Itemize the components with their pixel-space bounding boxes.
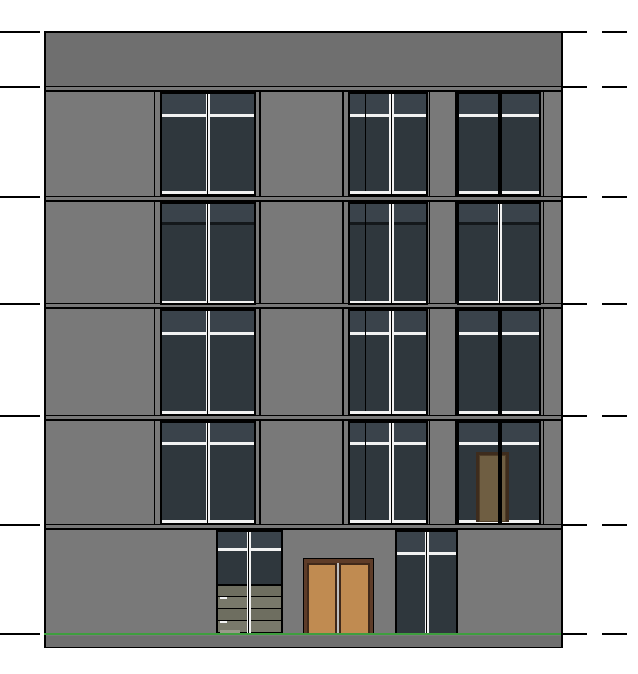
level-line-left-0[interactable]	[0, 31, 40, 33]
level-line-left-6[interactable]	[0, 633, 40, 635]
parapet-band	[46, 33, 561, 87]
window-mullion-centerline	[207, 94, 208, 194]
level-line-left-1[interactable]	[0, 86, 40, 88]
level-line-left-2[interactable]	[0, 196, 40, 198]
window-mullion-centerline	[248, 532, 249, 634]
facade-panel-line	[429, 202, 431, 303]
facade-panel-line	[342, 202, 344, 303]
slab-edge-line-upper-0	[46, 86, 562, 88]
window-casement-line	[365, 311, 367, 411]
window-mullion-centerline	[207, 423, 208, 523]
window-mullion-centerline	[499, 204, 500, 304]
level-line-right-4-1[interactable]	[602, 415, 627, 417]
level-line-right-3-0[interactable]	[561, 303, 587, 305]
grade-line[interactable]	[44, 633, 563, 635]
facade-panel-line	[154, 202, 156, 303]
facade-panel-line	[342, 92, 344, 196]
window-mullion-centerline	[391, 204, 392, 304]
window-sill	[350, 520, 426, 523]
window-mullion-centerline	[391, 423, 392, 523]
facade-panel-line	[259, 92, 261, 196]
entry-door-leaf	[339, 563, 370, 635]
facade-panel-line	[429, 92, 431, 196]
window-pane-main	[350, 117, 426, 192]
facade-panel-line	[543, 92, 545, 196]
slab-edge-line-lower-4	[46, 528, 562, 530]
window-pane-transom	[350, 94, 426, 114]
window-sill	[350, 411, 426, 414]
level-line-right-5-1[interactable]	[602, 524, 627, 526]
level-line-left-4[interactable]	[0, 415, 40, 417]
facade-panel-line	[342, 309, 344, 415]
facade-panel-line	[259, 202, 261, 303]
level-line-left-5[interactable]	[0, 524, 40, 526]
window-sill	[350, 301, 426, 304]
level-line-right-4-0[interactable]	[561, 415, 587, 417]
level-line-right-1-1[interactable]	[602, 86, 627, 88]
level-line-left-3[interactable]	[0, 303, 40, 305]
window-mullion-black	[498, 311, 502, 414]
window-casement-line	[365, 94, 367, 192]
window-mullion-centerline	[207, 204, 208, 304]
window-casement-line	[365, 423, 367, 520]
level-line-right-1-0[interactable]	[561, 86, 587, 88]
window-mullion-black	[498, 94, 502, 194]
window-mullion-centerline	[426, 532, 427, 634]
facade-panel-line	[429, 309, 431, 415]
entry-door-meeting-line	[337, 563, 338, 635]
window-pane-main	[350, 335, 426, 412]
level-line-right-6-1[interactable]	[602, 633, 627, 635]
facade-panel-line	[543, 421, 545, 524]
balcony-door-panel	[479, 455, 506, 522]
level-line-right-2-1[interactable]	[602, 196, 627, 198]
level-line-right-0-1[interactable]	[602, 31, 627, 33]
facade-panel-line	[342, 421, 344, 524]
window-mullion-centerline	[207, 311, 208, 414]
facade-panel-line	[154, 421, 156, 524]
facade-panel-line	[259, 309, 261, 415]
elevation-drawing-canvas[interactable]	[0, 0, 638, 674]
window-mullion-black	[498, 423, 502, 523]
facade-panel-line	[154, 309, 156, 415]
entry-door-leaf	[307, 563, 338, 635]
facade-panel-line	[543, 202, 545, 303]
facade-panel-line	[543, 309, 545, 415]
level-line-right-2-0[interactable]	[561, 196, 587, 198]
window-pane-transom	[350, 423, 426, 442]
facade-panel-line	[259, 421, 261, 524]
window-mullion-centerline	[391, 94, 392, 194]
window-pane-main	[350, 225, 426, 301]
facade-panel-line	[429, 421, 431, 524]
stair-nosing-tick	[220, 621, 227, 623]
facade-panel-line	[154, 92, 156, 196]
window-pane-transom	[350, 204, 426, 222]
window-pane-transom	[350, 311, 426, 332]
window-sill	[350, 191, 426, 194]
base-band	[46, 636, 561, 647]
stair-nosing-tick	[220, 597, 227, 599]
window-pane-main	[350, 445, 426, 521]
level-line-right-5-0[interactable]	[561, 524, 587, 526]
slab-edge-line-upper-1	[46, 196, 562, 198]
level-line-right-6-0[interactable]	[561, 633, 587, 635]
level-line-right-0-0[interactable]	[561, 31, 587, 33]
window-mullion-centerline	[391, 311, 392, 414]
window-casement-line	[365, 204, 367, 301]
level-line-right-3-1[interactable]	[602, 303, 627, 305]
